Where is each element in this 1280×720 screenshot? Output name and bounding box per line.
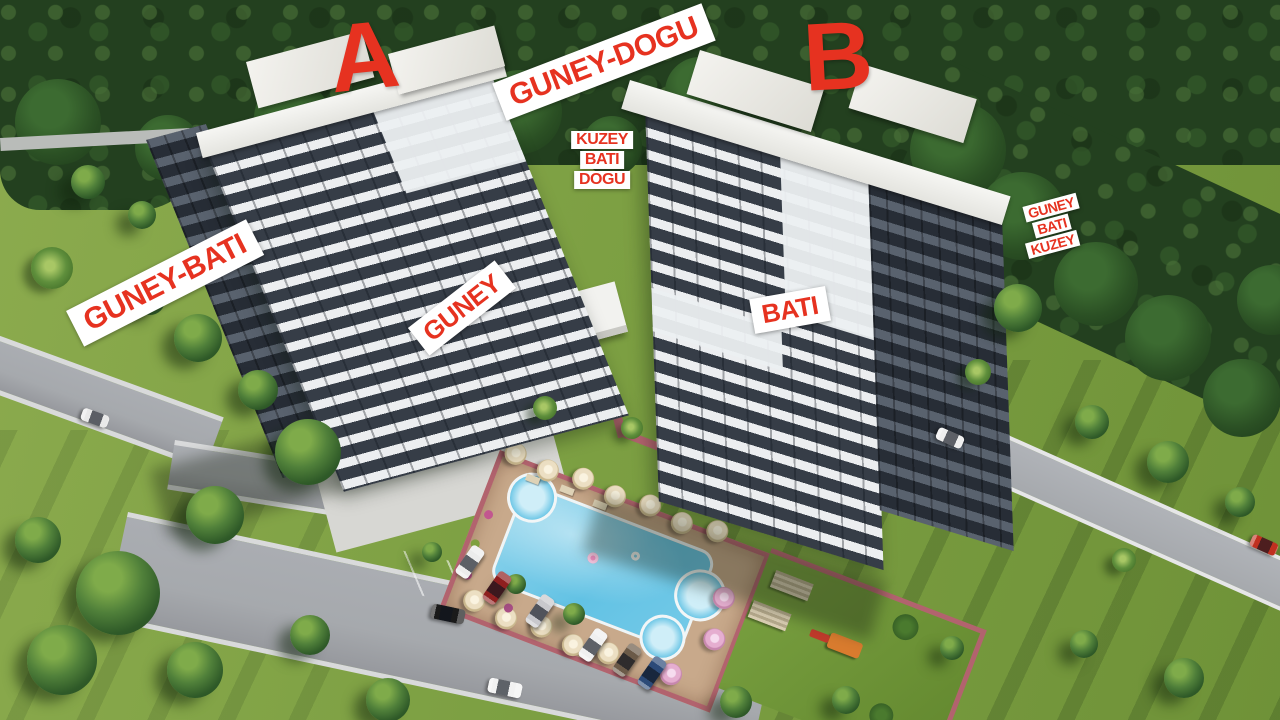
playground-palm bbox=[866, 700, 897, 720]
tree bbox=[1147, 441, 1189, 483]
palm-tree bbox=[533, 396, 557, 420]
tree bbox=[832, 686, 860, 714]
label-kuzey: KUZEY bbox=[571, 131, 633, 149]
tree bbox=[940, 636, 964, 660]
tree bbox=[1164, 658, 1204, 698]
palm-tree bbox=[1112, 548, 1136, 572]
tree bbox=[563, 603, 585, 625]
palm-tree bbox=[621, 417, 643, 439]
slide bbox=[809, 629, 831, 644]
label-kuzey-bati-dogu-stack: KUZEY BATI DOGU bbox=[571, 131, 633, 189]
tree bbox=[366, 678, 410, 720]
aerial-render-scene: A B GUNEY-DOGU GUNEY-BATI GUNEY BATI KUZ… bbox=[0, 0, 1280, 720]
forest-tree bbox=[1203, 359, 1280, 437]
tree bbox=[290, 615, 330, 655]
tree bbox=[422, 542, 442, 562]
tree bbox=[1225, 487, 1255, 517]
tree bbox=[275, 419, 341, 485]
forest-tree bbox=[1054, 242, 1138, 326]
label-dogu: DOGU bbox=[574, 171, 630, 189]
tree bbox=[720, 686, 752, 718]
tree bbox=[186, 486, 244, 544]
playground-palm bbox=[889, 610, 923, 644]
tree bbox=[994, 284, 1042, 332]
palm-tree bbox=[31, 247, 73, 289]
tree bbox=[174, 314, 222, 362]
tree bbox=[15, 517, 61, 563]
tree bbox=[1070, 630, 1098, 658]
forest-tree bbox=[1125, 295, 1211, 381]
tree bbox=[1075, 405, 1109, 439]
tree bbox=[128, 201, 156, 229]
tower-b-side-face bbox=[868, 172, 1014, 551]
tree bbox=[27, 625, 97, 695]
label-bati-small: BATI bbox=[580, 151, 624, 169]
palm-tree bbox=[965, 359, 991, 385]
forest-tree bbox=[15, 79, 101, 165]
tree bbox=[71, 165, 105, 199]
tree bbox=[238, 370, 278, 410]
tree bbox=[167, 642, 223, 698]
label-block-b: B bbox=[801, 7, 875, 106]
label-block-a: A bbox=[325, 6, 404, 109]
tree bbox=[76, 551, 160, 635]
